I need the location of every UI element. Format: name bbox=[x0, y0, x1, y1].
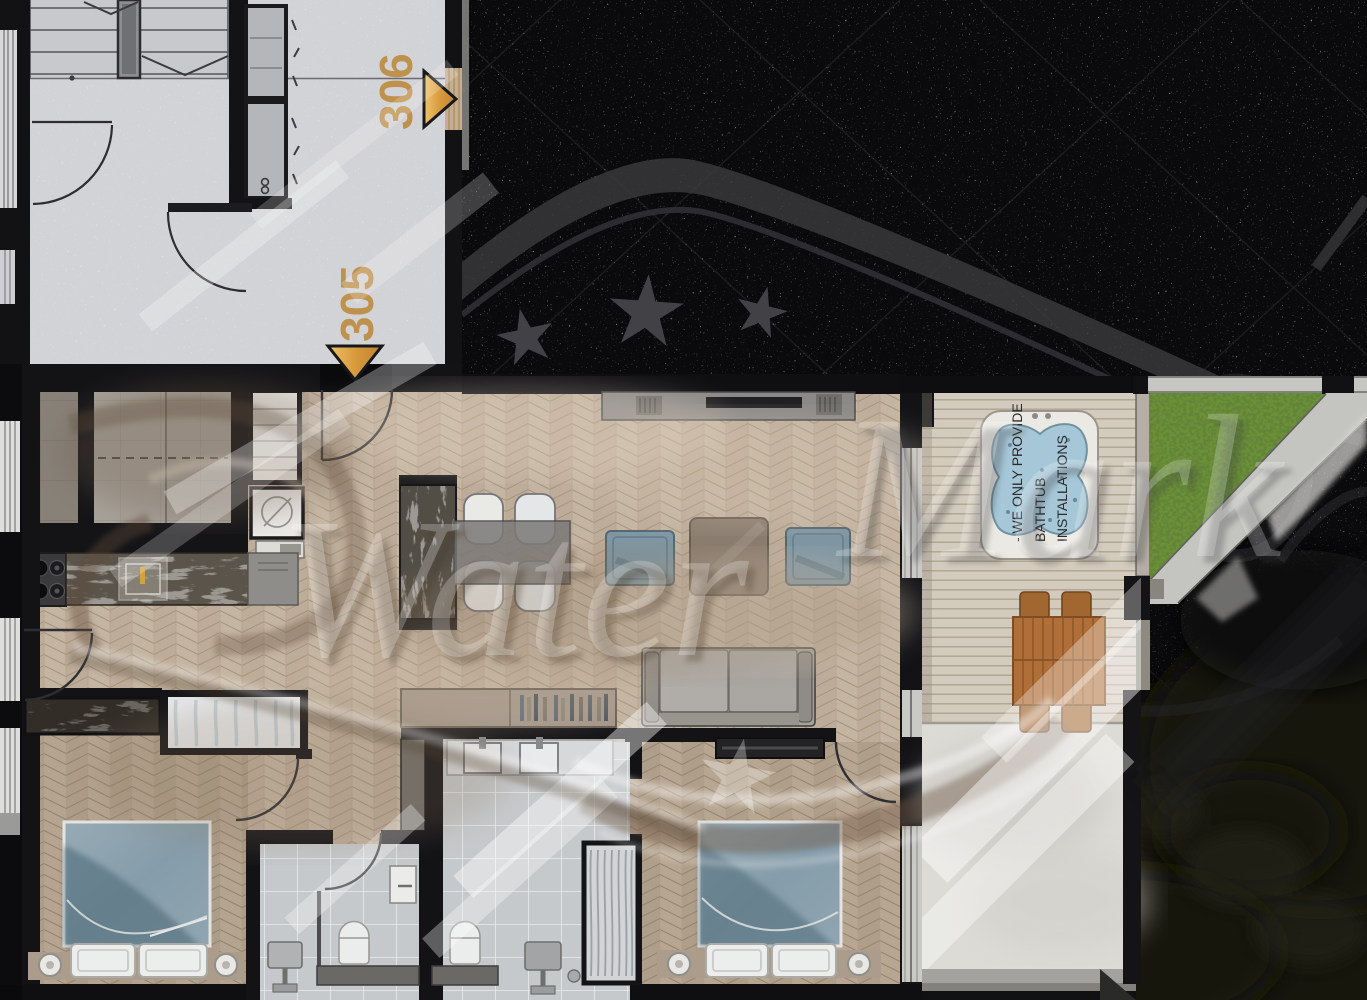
svg-text:Water: Water bbox=[278, 478, 750, 699]
svg-text:Mark: Mark bbox=[835, 374, 1285, 601]
